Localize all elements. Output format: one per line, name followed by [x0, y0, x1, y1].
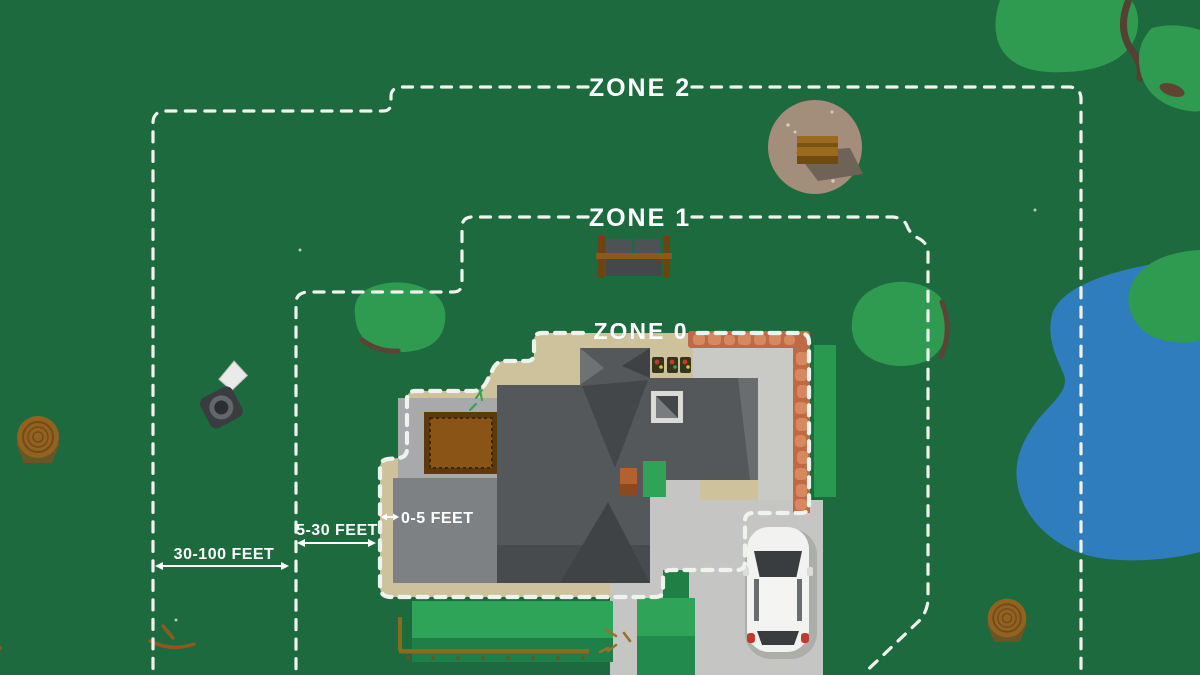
zone-0-label: ZONE 0	[593, 318, 688, 344]
zone-2-label: ZONE 2	[589, 74, 691, 102]
distance-5-30-label: 5-30 FEET	[296, 522, 378, 539]
chimney	[651, 391, 683, 423]
zone-1-label: ZONE 1	[589, 204, 691, 232]
car	[743, 527, 817, 659]
diagram-canvas: ZONE 2 ZONE 1 ZONE 0 0-5 FEET 5-30 FEET …	[0, 0, 1200, 675]
backyard-garden	[398, 601, 613, 662]
defensible-space-diagram: ZONE 2 ZONE 1 ZONE 0 0-5 FEET 5-30 FEET …	[0, 0, 1200, 675]
flower-pots	[652, 357, 691, 373]
hedge	[814, 345, 836, 497]
tree-stump	[16, 416, 60, 463]
garage	[393, 478, 497, 583]
garden-row-edge	[398, 617, 402, 651]
lawn	[412, 601, 613, 638]
shrub	[643, 461, 666, 497]
wood-deck	[424, 412, 498, 474]
planter-box-shade	[620, 484, 637, 495]
garden-row	[399, 649, 589, 654]
tree-canopy	[852, 282, 948, 366]
distance-30-100-label: 30-100 FEET	[174, 546, 275, 563]
distance-0-5-label: 0-5 FEET	[401, 510, 473, 527]
tree-stump	[987, 599, 1027, 642]
